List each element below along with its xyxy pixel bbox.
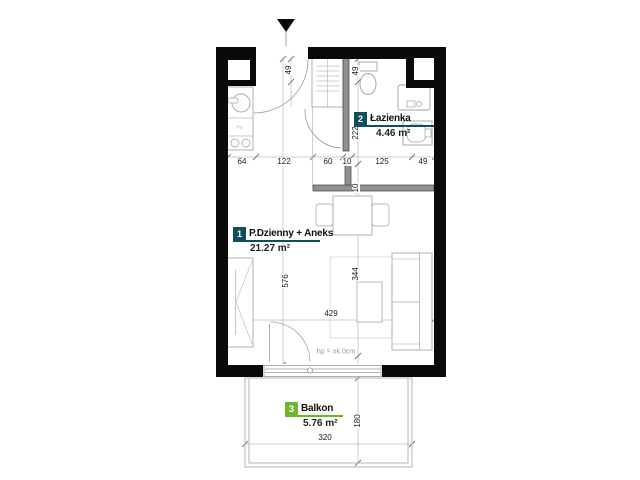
- room-area-living: 21.27 m²: [250, 244, 290, 254]
- partition-bath-living: [313, 185, 434, 191]
- dim-60: 60: [323, 158, 334, 166]
- dim-49-bath: 49: [352, 66, 360, 77]
- room-name-living: P.Dzienny + Aneks: [249, 227, 333, 240]
- toilet-icon: [359, 62, 377, 95]
- dining-table: [333, 196, 372, 235]
- shaft-top-right-void: [414, 58, 434, 80]
- shaft-top-left-void: [228, 60, 250, 80]
- dim-320: 320: [317, 434, 332, 442]
- kitchen-mark: 2: [237, 125, 244, 129]
- room-number-balcony: 3: [285, 402, 298, 415]
- washing-machine-icon: [398, 85, 430, 110]
- chair-right: [372, 204, 389, 226]
- wall-bottom-left: [216, 365, 263, 377]
- room-underline-balcony: [285, 415, 343, 417]
- room-number-bath: 2: [354, 112, 367, 125]
- coffee-table: [357, 282, 382, 322]
- room-number-living: 1: [233, 227, 246, 240]
- dim-10: 10: [342, 158, 353, 166]
- dim-49-entry: 49: [285, 65, 293, 76]
- dim-222: 222: [352, 125, 360, 140]
- dim-576: 576: [282, 273, 290, 288]
- balcony-window: [263, 364, 382, 377]
- bathroom-door-swing: [305, 109, 341, 148]
- dim-122: 122: [276, 158, 291, 166]
- floor-plan-canvas: 64 122 60 10 125 49 49 576 49 222 10 344…: [0, 0, 640, 480]
- sofa: [392, 253, 432, 350]
- chair-left: [316, 204, 333, 226]
- room-underline-living: [233, 240, 320, 242]
- room-name-bath: Łazienka: [370, 112, 411, 125]
- parapet-note: hp = ok.0cm: [317, 349, 355, 356]
- entrance-arrow-icon: [277, 19, 295, 32]
- wall-left: [216, 47, 228, 377]
- wall-right: [434, 47, 446, 377]
- dim-125: 125: [374, 158, 389, 166]
- room-underline-bath: [354, 125, 434, 127]
- room-area-balcony: 5.76 m²: [303, 419, 337, 429]
- dim-64: 64: [237, 158, 248, 166]
- dim-49-top: 49: [418, 158, 429, 166]
- kitchen-tap-icon: [228, 98, 238, 103]
- dim-429: 429: [323, 310, 338, 318]
- room-name-balcony: Balkon: [301, 402, 333, 415]
- dim-180: 180: [354, 413, 362, 428]
- entrance-door-swing: [254, 60, 308, 113]
- wall-bottom-right: [382, 365, 446, 377]
- hall-closet: [312, 57, 343, 107]
- dim-10-wall: 10: [352, 183, 360, 194]
- partition-hall-bath: [343, 57, 349, 151]
- balcony-door-swing: [270, 322, 310, 362]
- wardrobe: [226, 258, 253, 347]
- dim-344: 344: [352, 266, 360, 281]
- room-area-bath: 4.46 m²: [376, 129, 410, 139]
